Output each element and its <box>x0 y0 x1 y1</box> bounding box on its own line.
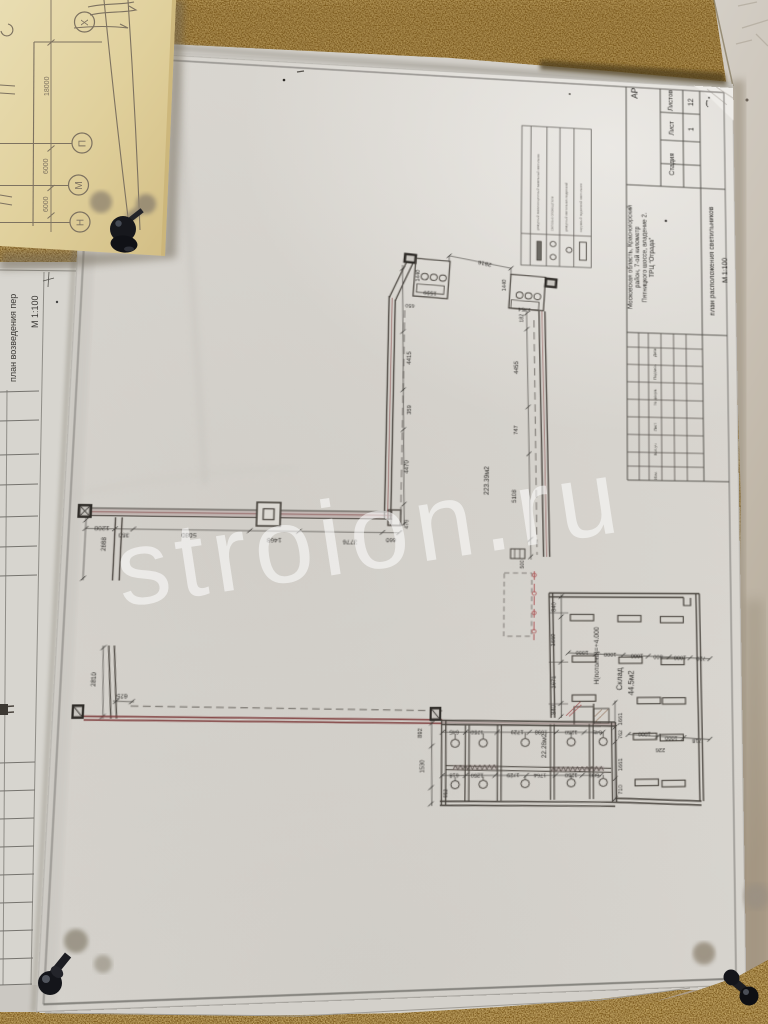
svg-text:6000: 6000 <box>43 196 50 212</box>
svg-text:6000: 6000 <box>43 158 50 174</box>
svg-text:stroion.ru: stroion.ru <box>108 437 632 630</box>
svg-text:Н: Н <box>75 219 86 226</box>
svg-text:П: П <box>77 140 88 147</box>
svg-text:18000: 18000 <box>44 76 51 96</box>
svg-text:Х: Х <box>80 19 91 26</box>
svg-text:М: М <box>74 181 85 189</box>
